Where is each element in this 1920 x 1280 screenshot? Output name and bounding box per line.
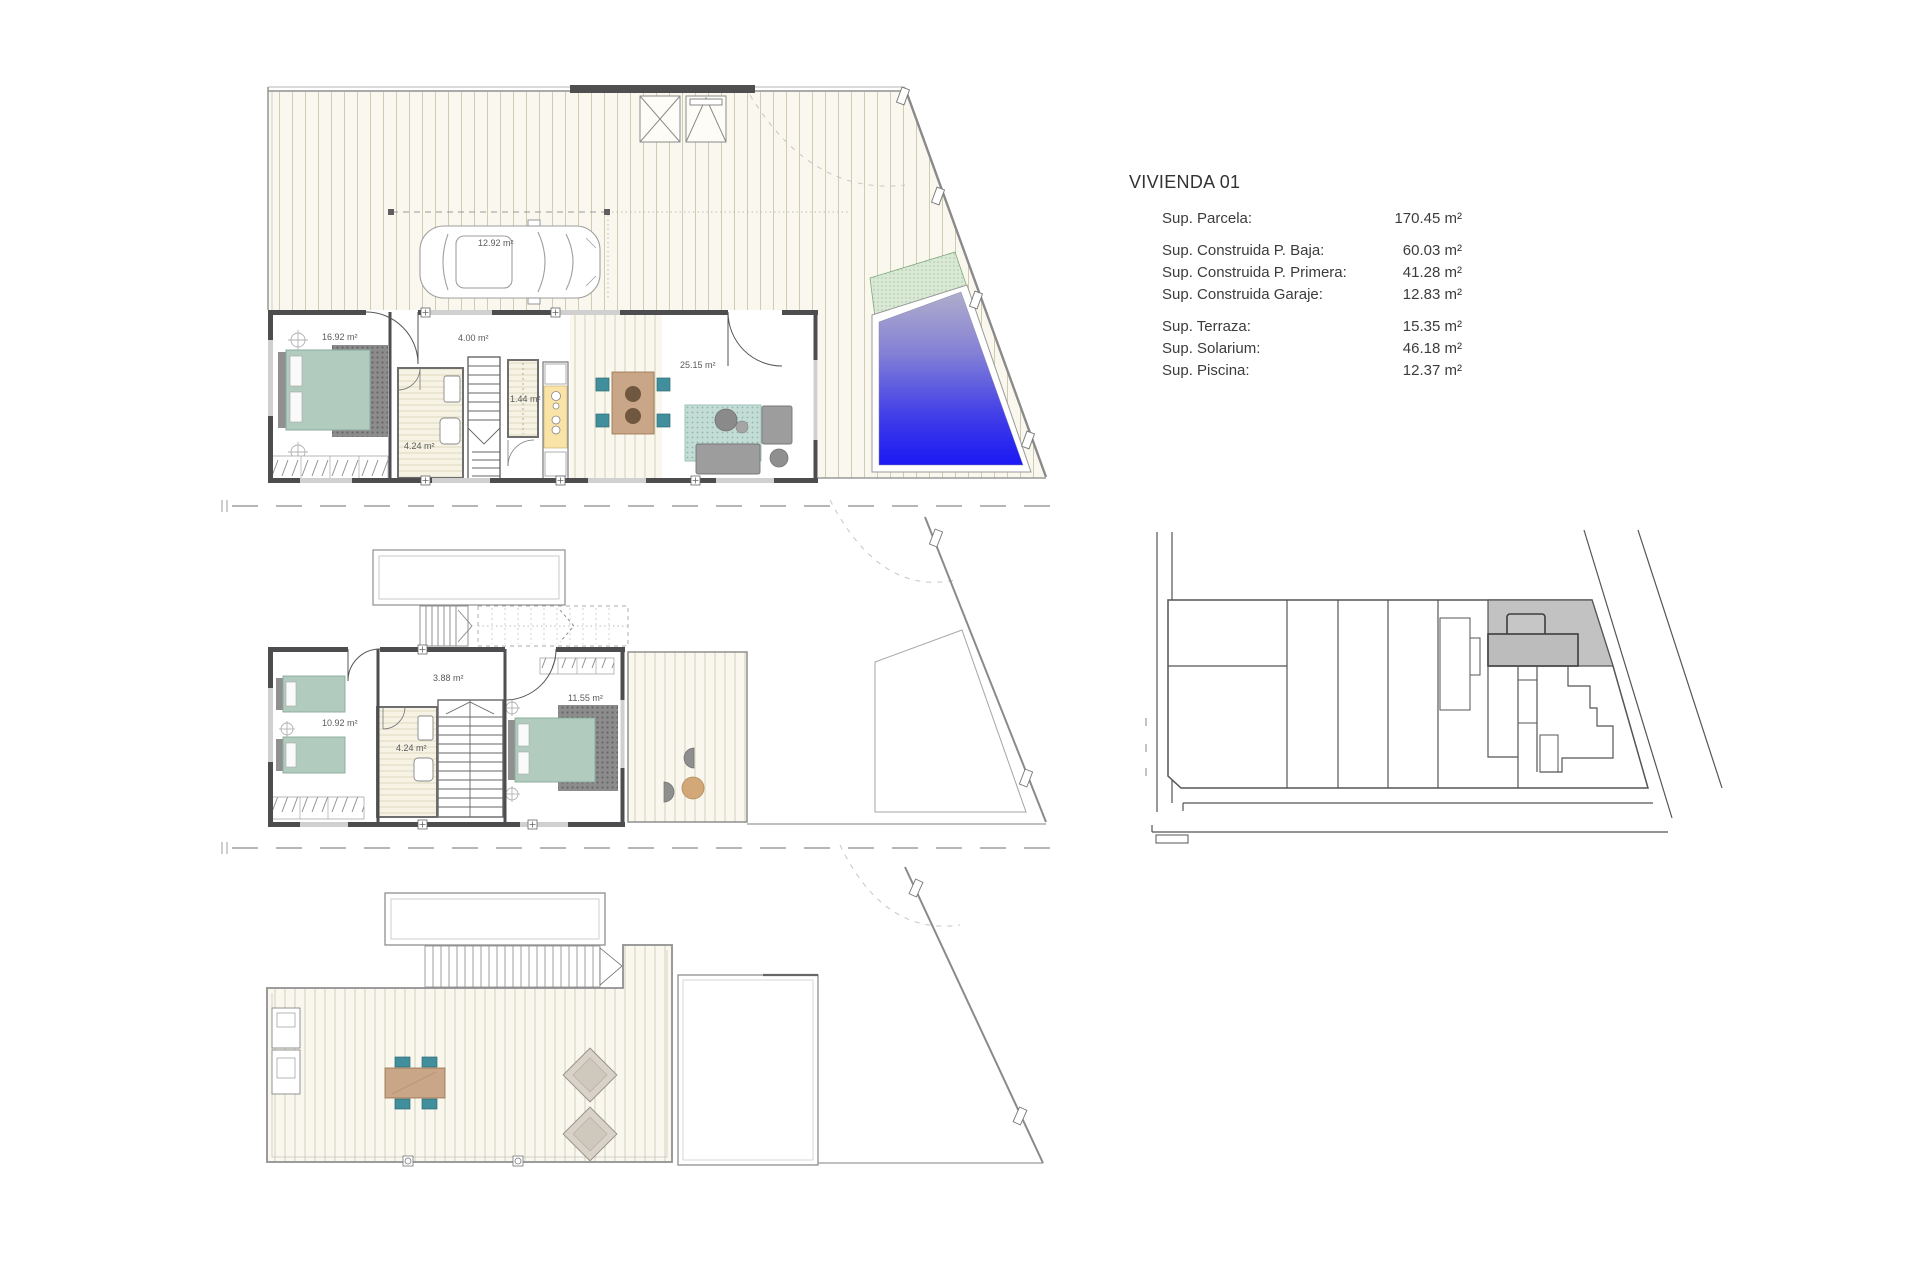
twin-bedroom-area-label: 10.92 m² bbox=[322, 718, 358, 728]
kitchen-ground bbox=[543, 362, 568, 480]
landing-area-label: 3.88 m² bbox=[433, 673, 464, 683]
hall-area-label: 4.00 m² bbox=[458, 333, 489, 343]
area-row: Sup. Solarium:46.18 m² bbox=[1162, 338, 1462, 360]
plan-sheet: 12.92 m² bbox=[0, 0, 1920, 1280]
roof-plan bbox=[267, 845, 1043, 1166]
stair-void-outline bbox=[373, 550, 565, 605]
bathroom-area-label: 4.24 m² bbox=[404, 441, 435, 451]
garage-area-label: 12.92 m² bbox=[478, 238, 514, 248]
area-row: Sup. Parcela:170.45 m² bbox=[1162, 208, 1462, 230]
stair-enclosure bbox=[385, 893, 605, 945]
area-rows: Sup. Parcela:170.45 m²Sup. Construida P.… bbox=[1162, 208, 1462, 382]
bedroom-ground: 16.92 m² bbox=[272, 330, 388, 480]
area-row-value: 46.18 m² bbox=[1403, 338, 1462, 360]
bathroom-first-area-label: 4.24 m² bbox=[396, 743, 427, 753]
area-row: Sup. Terraza:15.35 m² bbox=[1162, 316, 1462, 338]
bedroom-area-label: 16.92 m² bbox=[322, 332, 358, 342]
wc-area-label: 1.44 m² bbox=[510, 394, 541, 404]
first-floor-plan: 10.92 m² 3.88 m² 4.24 m² bbox=[268, 500, 1046, 829]
area-row-value: 15.35 m² bbox=[1403, 316, 1462, 338]
area-row-value: 12.37 m² bbox=[1403, 360, 1462, 382]
area-row: Sup. Construida Garaje:12.83 m² bbox=[1162, 284, 1462, 306]
area-row: Sup. Piscina:12.37 m² bbox=[1162, 360, 1462, 382]
entrance-gate bbox=[570, 85, 755, 93]
area-summary-panel: VIVIENDA 01 Sup. Parcela:170.45 m²Sup. C… bbox=[1129, 172, 1469, 193]
living-area-label: 25.15 m² bbox=[680, 360, 716, 370]
dwelling-title: VIVIENDA 01 bbox=[1129, 172, 1469, 193]
lower-roof-outline bbox=[678, 975, 818, 1165]
area-row: Sup. Construida P. Primera:41.28 m² bbox=[1162, 262, 1462, 284]
roof-kitchenette bbox=[272, 1008, 300, 1094]
stairs-first bbox=[438, 700, 503, 817]
ground-floor-plan: 12.92 m² bbox=[268, 85, 1046, 485]
area-row-label: Sup. Piscina: bbox=[1162, 360, 1250, 382]
house-footprint-lower bbox=[1488, 634, 1578, 666]
bathroom-first: 4.24 m² bbox=[377, 707, 437, 817]
area-row: Sup. Construida P. Baja:60.03 m² bbox=[1162, 240, 1462, 262]
area-row-label: Sup. Terraza: bbox=[1162, 316, 1251, 338]
car-top-view bbox=[420, 220, 600, 304]
bathroom-ground: 4.24 m² bbox=[398, 368, 463, 478]
area-row-value: 170.45 m² bbox=[1394, 208, 1462, 230]
area-row-label: Sup. Construida P. Primera: bbox=[1162, 262, 1347, 284]
stairs-ground bbox=[468, 357, 500, 480]
area-row-value: 60.03 m² bbox=[1403, 240, 1462, 262]
area-row-label: Sup. Parcela: bbox=[1162, 208, 1252, 230]
roof-stair-run bbox=[425, 946, 622, 987]
area-row-label: Sup. Construida Garaje: bbox=[1162, 284, 1323, 306]
site-plan bbox=[1146, 530, 1722, 843]
area-row-value: 41.28 m² bbox=[1403, 262, 1462, 284]
drawing-canvas: 12.92 m² bbox=[0, 0, 1920, 1280]
street-curbs bbox=[1183, 803, 1653, 811]
upper-stair-run bbox=[420, 606, 628, 646]
first-floor-plot bbox=[747, 517, 1046, 824]
area-row-label: Sup. Construida P. Baja: bbox=[1162, 240, 1324, 262]
area-row-value: 12.83 m² bbox=[1403, 284, 1462, 306]
terrace bbox=[628, 652, 747, 822]
area-row-label: Sup. Solarium: bbox=[1162, 338, 1260, 360]
roof-plot bbox=[818, 845, 1043, 1163]
master-area-label: 11.55 m² bbox=[568, 693, 603, 703]
